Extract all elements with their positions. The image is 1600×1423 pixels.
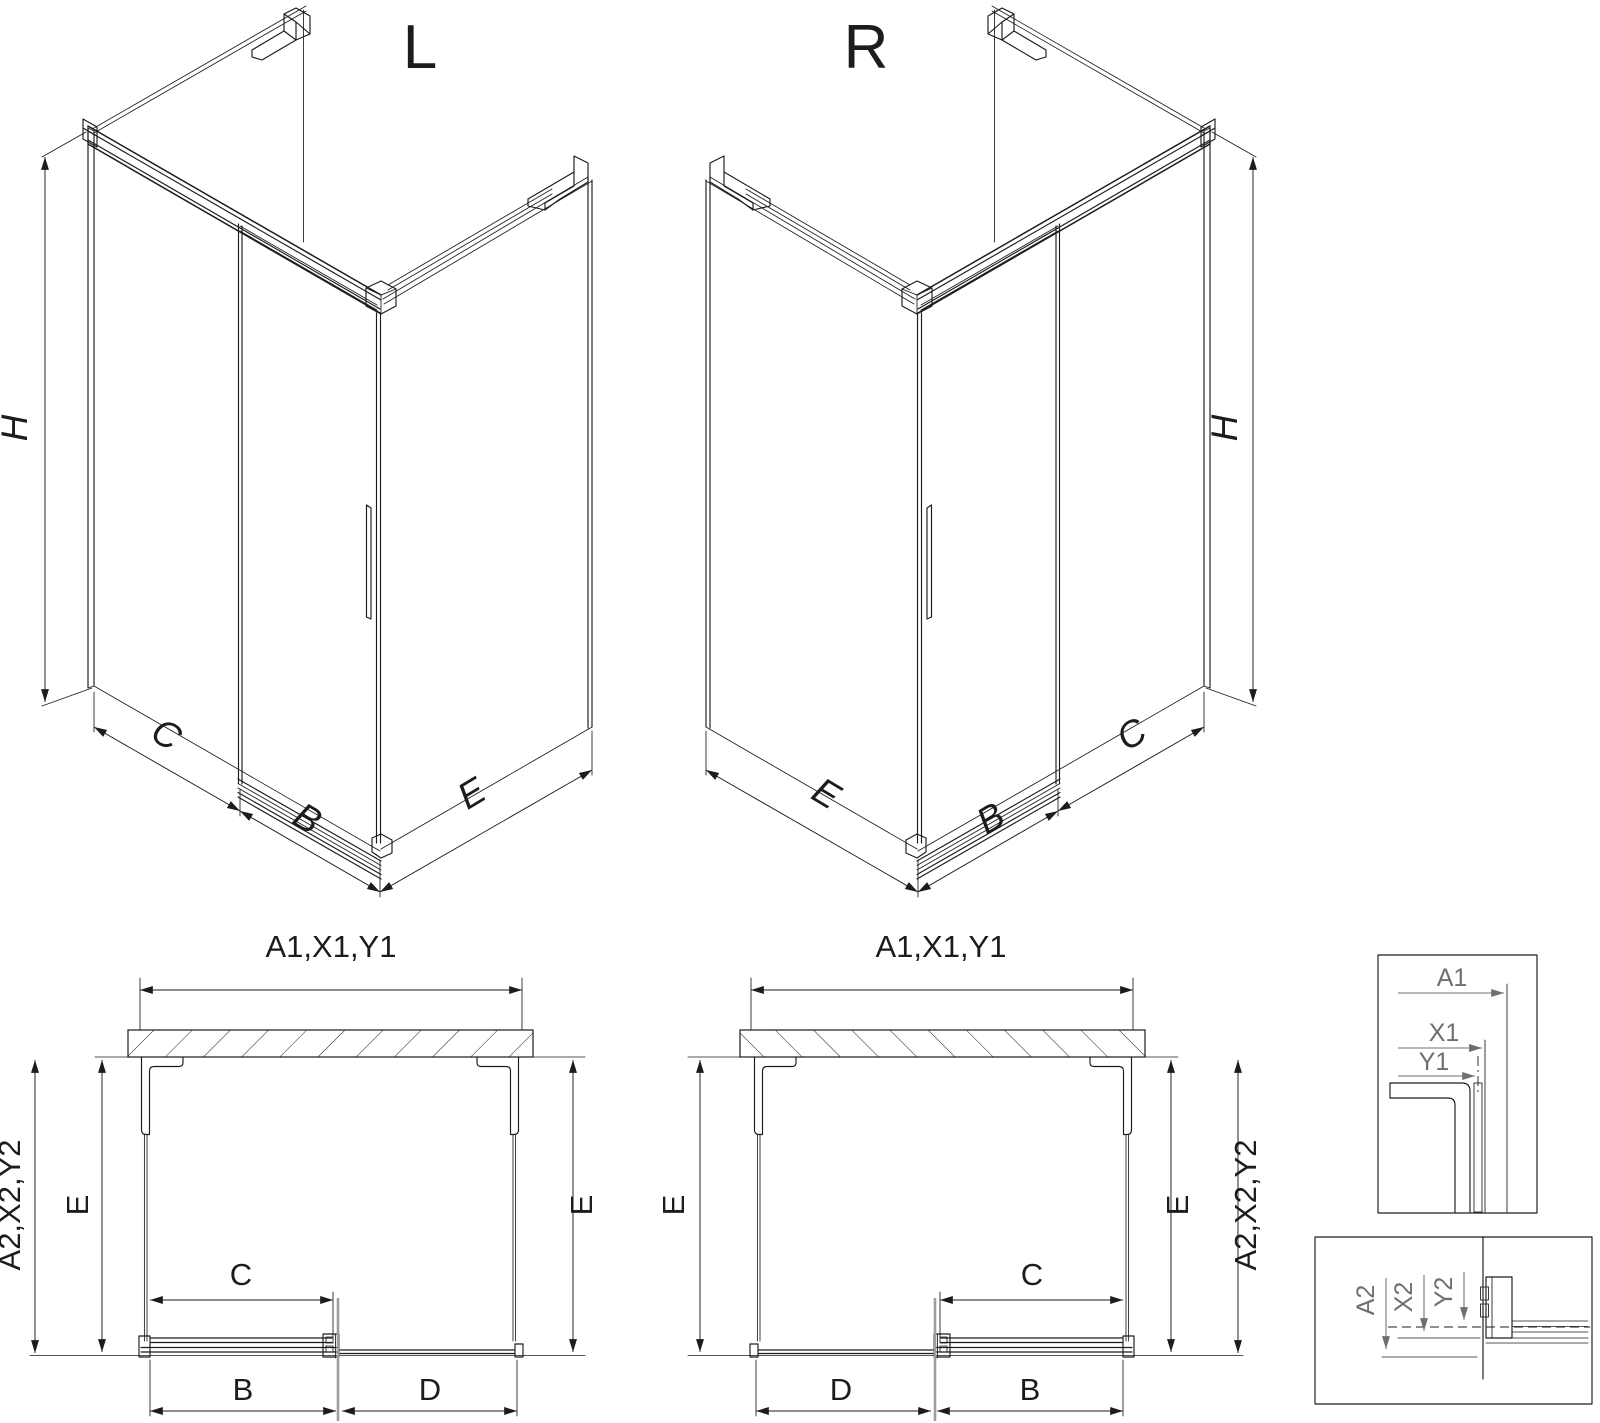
plan-left-fixed-dim: D [419, 1372, 441, 1407]
shower-enclosure-technical-drawing: L H C B E R H C B E A1,X1,Y1 A2,X2,Y2 E … [0, 0, 1600, 1423]
variant-label-left: L [403, 13, 437, 82]
plan-left-side-e-left: E [60, 1195, 95, 1216]
plan-view-right: A1,X1,Y1 A2,X2,Y2 E E C B D [656, 929, 1263, 1421]
dim-label-side-right: E [805, 769, 848, 818]
plan-right-opening-dim: C [1021, 1257, 1043, 1292]
dim-label-panel-right: C [1110, 710, 1154, 759]
detail-glass-dim-y1: Y1 [1419, 1048, 1450, 1076]
detail-door-dim-y2: Y2 [1430, 1277, 1458, 1308]
plan-right-fixed-dim: D [830, 1372, 852, 1407]
plan-left-depth-dims: A2,X2,Y2 [0, 1140, 27, 1271]
dim-label-height-left: H [0, 414, 35, 441]
detail-box-glass-section: A1 X1 Y1 [1378, 955, 1537, 1213]
iso-view-right: R H C B E [706, 6, 1256, 897]
plan-right-width-dims: A1,X1,Y1 [876, 929, 1007, 964]
plan-left-opening-dim: C [230, 1257, 252, 1292]
dim-label-side-left: E [450, 769, 493, 818]
detail-glass-dim-x1: X1 [1429, 1019, 1460, 1047]
dim-label-height-right: H [1204, 414, 1245, 441]
plan-left-door-dim: B [233, 1372, 254, 1407]
dim-label-panel-left: C [144, 710, 188, 759]
plan-left-width-dims: A1,X1,Y1 [266, 929, 397, 964]
plan-right-door-dim: B [1020, 1372, 1041, 1407]
plan-right-side-e-left: E [656, 1195, 691, 1216]
detail-glass-dim-a1: A1 [1437, 964, 1468, 992]
drawing-page: L H C B E R H C B E A1,X1,Y1 A2,X2,Y2 E … [0, 0, 1600, 1423]
iso-view-left: L H C B E [0, 6, 592, 897]
plan-view-left: A1,X1,Y1 A2,X2,Y2 E E C B D [0, 929, 599, 1421]
plan-right-depth-dims: A2,X2,Y2 [1228, 1140, 1263, 1271]
dim-label-door-right: B [969, 794, 1011, 842]
variant-label-right: R [844, 13, 889, 82]
dim-label-door-left: B [286, 794, 328, 842]
detail-door-dim-a2: A2 [1352, 1285, 1380, 1316]
detail-box-door-section: A2 X2 Y2 [1315, 1237, 1592, 1404]
detail-door-dim-x2: X2 [1390, 1282, 1418, 1313]
plan-right-side-e-right: E [1160, 1195, 1195, 1216]
plan-left-side-e-right: E [564, 1195, 599, 1216]
